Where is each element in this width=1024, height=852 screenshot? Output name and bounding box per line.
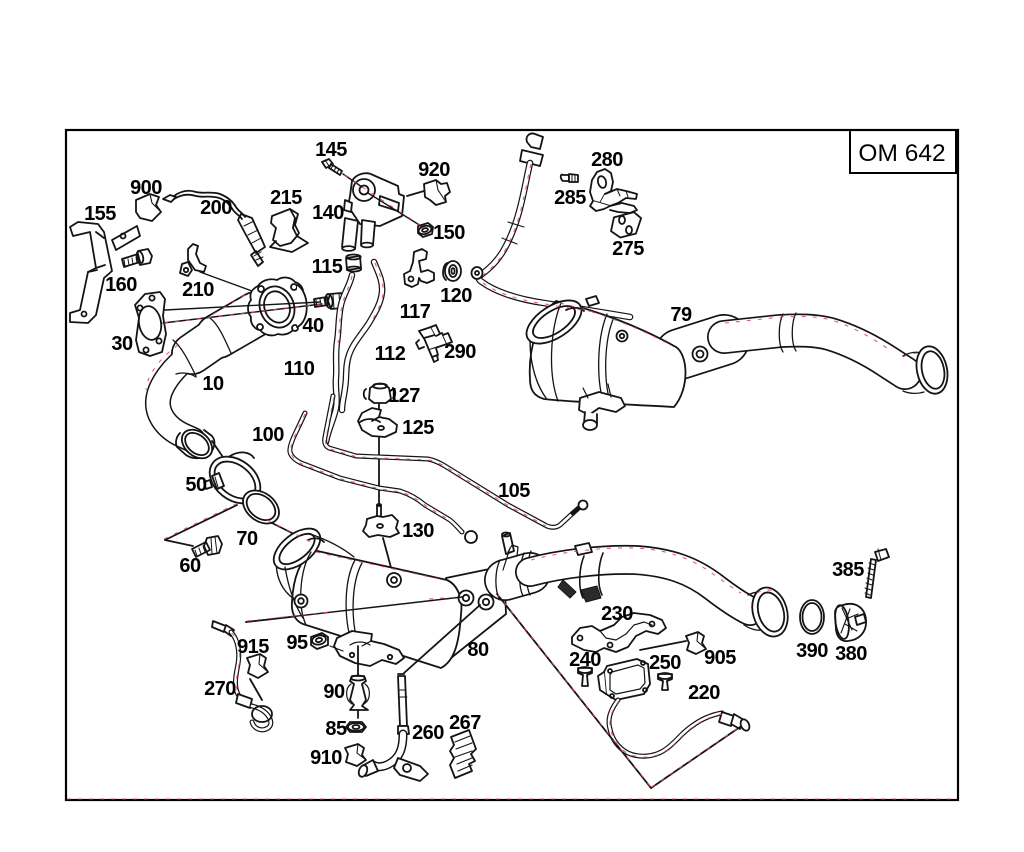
svg-text:40: 40 <box>302 315 324 337</box>
svg-text:30: 30 <box>111 333 133 355</box>
svg-text:160: 160 <box>105 274 137 296</box>
svg-text:60: 60 <box>179 555 201 577</box>
svg-text:250: 250 <box>649 652 681 674</box>
svg-text:140: 140 <box>312 202 344 224</box>
svg-text:79: 79 <box>670 304 692 326</box>
svg-text:220: 220 <box>688 682 720 704</box>
svg-text:125: 125 <box>402 417 434 439</box>
svg-text:900: 900 <box>130 177 162 199</box>
svg-text:275: 275 <box>612 238 644 260</box>
svg-text:90: 90 <box>323 681 345 703</box>
svg-text:145: 145 <box>315 139 347 161</box>
svg-text:110: 110 <box>284 358 315 380</box>
svg-text:905: 905 <box>704 647 736 669</box>
svg-text:50: 50 <box>185 474 207 496</box>
svg-text:70: 70 <box>236 528 258 550</box>
svg-text:385: 385 <box>832 559 864 581</box>
svg-text:270: 270 <box>204 678 236 700</box>
svg-text:150: 150 <box>433 222 465 244</box>
svg-text:127: 127 <box>388 385 420 407</box>
svg-text:112: 112 <box>375 343 406 365</box>
svg-text:280: 280 <box>591 149 623 171</box>
svg-text:155: 155 <box>84 203 116 225</box>
svg-text:215: 215 <box>270 187 302 209</box>
svg-text:380: 380 <box>835 643 867 665</box>
svg-text:910: 910 <box>310 747 342 769</box>
svg-text:130: 130 <box>402 520 434 542</box>
svg-text:85: 85 <box>325 718 347 740</box>
svg-text:80: 80 <box>467 639 489 661</box>
svg-text:210: 210 <box>182 279 214 301</box>
svg-text:920: 920 <box>418 159 450 181</box>
svg-text:100: 100 <box>252 424 284 446</box>
svg-text:115: 115 <box>312 256 343 278</box>
svg-text:117: 117 <box>400 301 431 323</box>
svg-text:230: 230 <box>601 603 633 625</box>
svg-text:390: 390 <box>796 640 828 662</box>
svg-text:285: 285 <box>554 187 586 209</box>
svg-text:200: 200 <box>200 197 232 219</box>
svg-text:240: 240 <box>569 649 601 671</box>
svg-text:915: 915 <box>237 636 269 658</box>
svg-text:120: 120 <box>440 285 472 307</box>
svg-text:105: 105 <box>498 480 530 502</box>
svg-text:267: 267 <box>449 712 481 734</box>
svg-text:260: 260 <box>412 722 444 744</box>
svg-text:OM 642: OM 642 <box>858 140 945 167</box>
svg-text:95: 95 <box>286 632 308 654</box>
svg-text:10: 10 <box>202 373 224 395</box>
svg-text:290: 290 <box>444 341 476 363</box>
